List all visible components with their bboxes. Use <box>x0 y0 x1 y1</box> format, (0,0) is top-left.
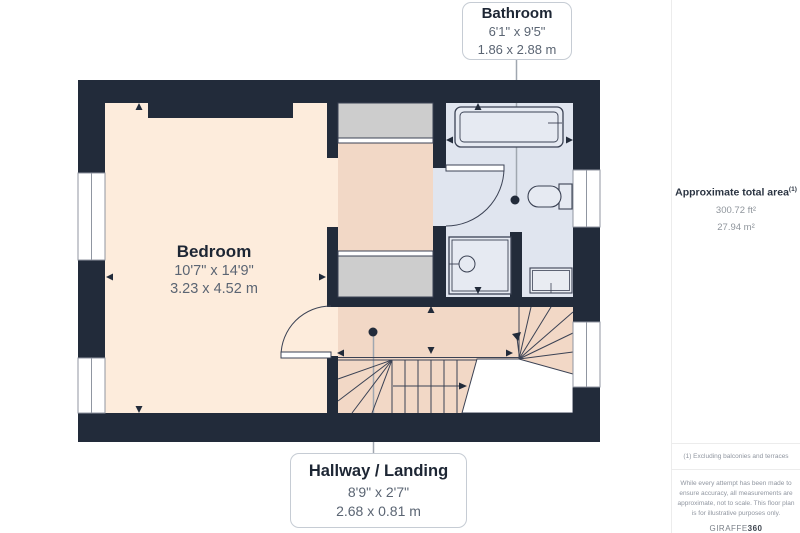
brand-name: GIRAFFE <box>709 524 747 533</box>
bathroom-dim-imperial: 6'1" x 9'5" <box>463 23 571 41</box>
wall-bedroom-notch <box>148 103 293 118</box>
wardrobe-top-front <box>338 138 433 143</box>
bathroom-dim-metric: 1.86 x 2.88 m <box>463 41 571 59</box>
total-area-block: Approximate total area(1) 300.72 ft² 27.… <box>672 186 800 233</box>
toilet-bowl <box>528 186 561 207</box>
bedroom-door-panel <box>281 352 331 358</box>
bedroom-label: Bedroom 10'7" x 14'9" 3.23 x 4.52 m <box>119 241 309 298</box>
bedroom-dim-metric: 3.23 x 4.52 m <box>119 280 309 298</box>
wall-bedroom-divider-mid <box>327 227 338 307</box>
wardrobe-top <box>338 103 433 138</box>
wall-right <box>573 80 600 442</box>
total-area-title-text: Approximate total area <box>675 187 789 199</box>
footnote-text: (1) Excluding balconies and terraces <box>683 453 788 460</box>
bathroom-door-panel <box>446 165 504 171</box>
bedroom-hallway-doorway <box>327 307 338 356</box>
disclaimer-box: While every attempt has been made to ens… <box>672 471 800 533</box>
wall-shower-stub <box>510 232 522 307</box>
wall-bedroom-divider-upper <box>327 103 338 158</box>
total-area-metric: 27.94 m² <box>672 222 800 233</box>
bathroom-doorway-gap <box>433 168 446 226</box>
bedroom-dim-imperial: 10'7" x 14'9" <box>119 262 309 280</box>
wall-top <box>78 80 600 103</box>
bathroom-label: Bathroom 6'1" x 9'5" 1.86 x 2.88 m <box>462 2 572 60</box>
hallway-label: Hallway / Landing 8'9" x 2'7" 2.68 x 0.8… <box>290 453 467 528</box>
bedroom-corridor-opening <box>327 158 338 227</box>
floorplan-page: Bathroom 6'1" x 9'5" 1.86 x 2.88 m Hallw… <box>0 0 800 533</box>
disclaimer-text: While every attempt has been made to ens… <box>677 479 795 519</box>
total-area-superscript: (1) <box>789 186 797 193</box>
bedroom-title: Bedroom <box>119 241 309 262</box>
total-area-imperial: 300.72 ft² <box>672 205 800 216</box>
shower <box>449 237 511 294</box>
total-area-title: Approximate total area(1) <box>672 186 800 199</box>
bathtub <box>455 107 563 147</box>
brand-logo: GIRAFFE360 <box>672 524 800 533</box>
brand-suffix: 360 <box>748 524 763 533</box>
wardrobe-bottom <box>338 256 433 297</box>
bathroom-camera-dot <box>511 196 520 205</box>
hallway-title: Hallway / Landing <box>291 460 466 483</box>
wall-bottom <box>78 413 600 442</box>
footnote-box: (1) Excluding balconies and terraces <box>672 443 800 470</box>
wall-bathroom-left-upper <box>433 103 446 168</box>
info-sidebar: Approximate total area(1) 300.72 ft² 27.… <box>671 0 800 533</box>
wall-hallway-top <box>327 297 573 307</box>
wall-bathroom-left-lower <box>433 226 446 307</box>
hallway-dim-metric: 2.68 x 0.81 m <box>291 502 466 521</box>
hallway-camera-dot <box>369 328 378 337</box>
wall-bedroom-divider-lower <box>327 356 338 413</box>
wardrobe-bottom-front <box>338 251 433 256</box>
hallway-dim-imperial: 8'9" x 2'7" <box>291 483 466 502</box>
bathroom-title: Bathroom <box>463 4 571 23</box>
